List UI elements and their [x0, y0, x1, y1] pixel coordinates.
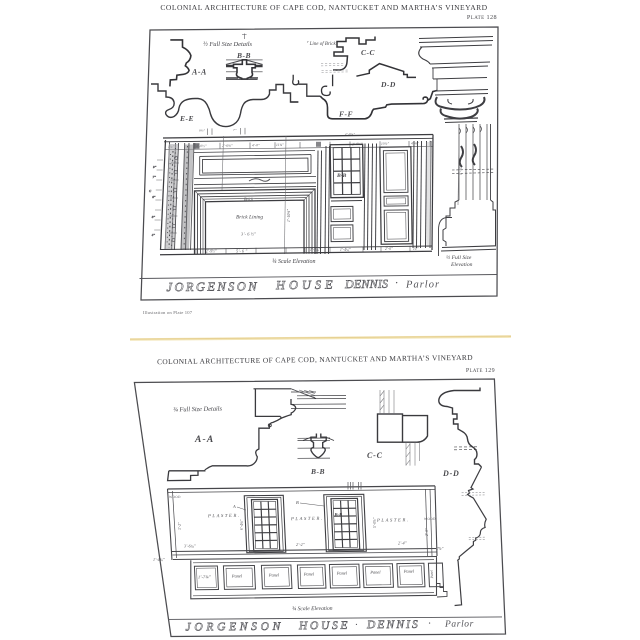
- svg-text:10½”: 10½”: [381, 142, 389, 146]
- svg-text:4”: 4”: [152, 233, 156, 237]
- svg-text:A: A: [232, 504, 236, 509]
- svg-text:PLASTER.: PLASTER.: [207, 513, 241, 518]
- svg-text:F-F: F-F: [339, 110, 353, 119]
- svg-text:2’-4”: 2’-4”: [398, 541, 408, 546]
- svg-text:·: ·: [355, 620, 358, 631]
- svg-text:7”: 7”: [233, 128, 237, 132]
- svg-text:DENNIS: DENNIS: [366, 619, 420, 631]
- svg-text:PLASTER.: PLASTER.: [290, 516, 324, 521]
- svg-text:Brick Lining: Brick Lining: [236, 215, 263, 221]
- svg-text:2’-2”: 2’-2”: [296, 542, 306, 547]
- svg-text:B: B: [296, 500, 299, 505]
- svg-text:6”: 6”: [152, 195, 156, 199]
- svg-text:1’-11¾”: 1’-11¾”: [459, 162, 463, 175]
- svg-text:10”: 10”: [413, 247, 419, 251]
- svg-text:HOUSE: HOUSE: [275, 278, 337, 293]
- svg-text:2’-0”: 2’-0”: [425, 528, 429, 536]
- svg-text:½ Full Size Details: ½ Full Size Details: [203, 41, 253, 48]
- svg-text:COLONIAL ARCHITECTURE OF CAPE: COLONIAL ARCHITECTURE OF CAPE COD, NANTU…: [160, 3, 487, 12]
- svg-text:B-B: B-B: [334, 512, 343, 517]
- svg-text:7”: 7”: [153, 175, 157, 179]
- svg-text:D-D: D-D: [442, 469, 460, 478]
- svg-text:C-C: C-C: [361, 48, 376, 57]
- svg-text:PLASTER.: PLASTER.: [376, 517, 410, 522]
- svg-text:B-B: B-B: [236, 51, 251, 60]
- svg-text:PLATE 129: PLATE 129: [466, 368, 495, 374]
- svg-text:Panel: Panel: [369, 570, 381, 575]
- svg-text:Panel: Panel: [268, 572, 280, 577]
- svg-text:JORGENSON: JORGENSON: [166, 279, 259, 294]
- svg-text:4’-0”: 4’-0”: [252, 143, 260, 147]
- svg-text:Panel: Panel: [403, 569, 415, 574]
- svg-text:B-B: B-B: [336, 173, 347, 179]
- svg-text:1’-4¼”: 1’-4¼”: [340, 248, 351, 252]
- svg-text:2’-9½”: 2’-9½”: [206, 250, 217, 254]
- svg-text:Panel: Panel: [303, 571, 315, 576]
- svg-text:2’-0”: 2’-0”: [385, 247, 393, 251]
- svg-text:11¾”: 11¾”: [276, 143, 284, 147]
- svg-text:Panel: Panel: [430, 570, 434, 579]
- svg-text:¾ Scale Elevation: ¾ Scale Elevation: [272, 259, 316, 265]
- svg-text:A-A: A-A: [191, 68, 207, 77]
- svg-text:5’- 6 ”: 5’- 6 ”: [236, 249, 248, 254]
- svg-text:3’- 6 ½”: 3’- 6 ½”: [241, 232, 257, 237]
- svg-text:A-A: A-A: [194, 435, 214, 445]
- svg-text:D-D: D-D: [380, 80, 396, 89]
- svg-text:E-E: E-E: [179, 114, 194, 123]
- svg-text:1’-7¾”: 1’-7¾”: [198, 574, 212, 579]
- svg-text:¾ Scale Elevation: ¾ Scale Elevation: [292, 606, 333, 612]
- svg-text:9⅓”: 9⅓”: [199, 129, 205, 133]
- svg-text:DENNIS: DENNIS: [344, 277, 388, 291]
- svg-text:·: ·: [428, 618, 431, 630]
- svg-text:WOOD: WOOD: [169, 495, 181, 499]
- svg-text:1’-4¾”: 1’-4¾”: [310, 248, 321, 252]
- svg-text:Brick: Brick: [244, 197, 253, 202]
- svg-text:¾ Full Size Details: ¾ Full Size Details: [173, 406, 223, 414]
- svg-text:1’-4¾”: 1’-4¾”: [153, 557, 166, 562]
- svg-text:9”: 9”: [153, 165, 157, 169]
- svg-text:3’-2”: 3’-2”: [178, 522, 182, 530]
- svg-text:Parlor: Parlor: [444, 619, 474, 629]
- svg-text:5’-0⅞”: 5’-0⅞”: [373, 517, 377, 528]
- svg-text:3’-6¼”: 3’-6¼”: [184, 544, 197, 549]
- svg-text:WOOD: WOOD: [424, 517, 436, 521]
- svg-text:½ Full Size: ½ Full Size: [446, 254, 472, 261]
- svg-text:Parlor: Parlor: [405, 279, 440, 290]
- svg-text:1’-10⅝”: 1’-10⅝”: [287, 209, 291, 222]
- svg-text:·: ·: [395, 276, 398, 290]
- svg-text:PLATE 128: PLATE 128: [467, 14, 497, 21]
- svg-text:Illustration on Plate 107: Illustration on Plate 107: [143, 310, 193, 315]
- svg-text:⌜ Line of Brick: ⌜ Line of Brick: [306, 41, 336, 47]
- svg-text:JORGENSON: JORGENSON: [185, 621, 284, 634]
- svg-text:Panel: Panel: [231, 573, 243, 578]
- svg-text:7⅞”: 7⅞”: [437, 547, 444, 551]
- svg-text:8”: 8”: [152, 215, 156, 219]
- svg-text:Elevation: Elevation: [450, 262, 473, 268]
- svg-text:B-B: B-B: [310, 467, 325, 476]
- svg-text:Panel: Panel: [336, 571, 348, 576]
- svg-text:C-C: C-C: [367, 451, 383, 460]
- svg-text:2’-6¾”: 2’-6¾”: [222, 144, 233, 148]
- svg-text:6’-4⅝”: 6’-4⅝”: [240, 519, 244, 530]
- svg-text:HOUSE: HOUSE: [298, 620, 350, 632]
